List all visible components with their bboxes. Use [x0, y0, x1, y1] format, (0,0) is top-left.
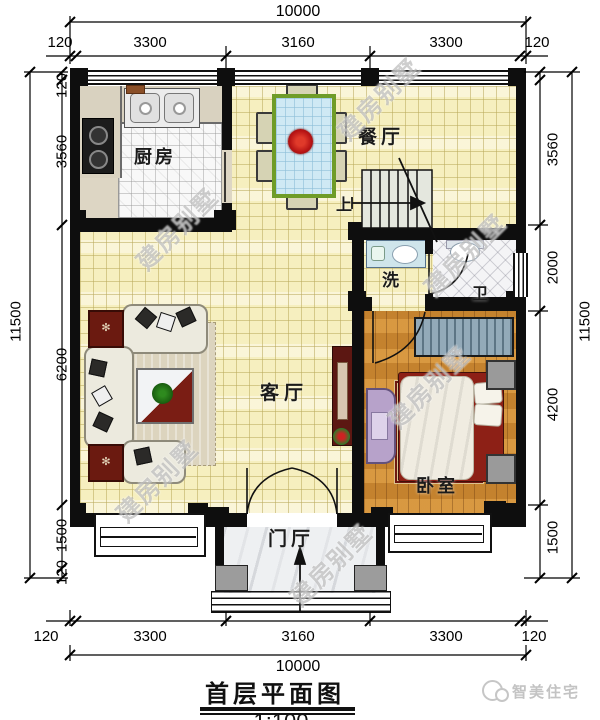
dim-top-seg-4: 120	[507, 34, 567, 51]
vanity-basin	[392, 245, 418, 264]
dim-top-overall: 10000	[248, 3, 348, 21]
dim-top-seg-0: 120	[30, 34, 90, 51]
soap-tray	[126, 85, 145, 94]
room-label-foyer: 门厅	[268, 524, 314, 551]
bay-window-bedroom-line	[394, 533, 482, 535]
room-label-living: 客厅	[260, 378, 308, 405]
pillow	[89, 359, 108, 378]
burner-top	[89, 126, 108, 145]
window-bath-right	[513, 253, 528, 297]
wall-living-bedroom-divider	[352, 240, 364, 513]
side-table-top: ✻	[88, 310, 124, 348]
porch-pier-left	[215, 565, 248, 591]
dim-top-seg-2: 3160	[268, 34, 328, 51]
sink-drain-right	[173, 102, 186, 115]
porch-pier-right	[354, 565, 387, 591]
dim-right-overall: 11500	[577, 287, 594, 357]
dim-left-seg-4: 120	[54, 538, 71, 608]
title-scale: 1:100	[253, 709, 308, 720]
dim-left-overall: 11500	[8, 287, 25, 357]
wall-right-lower	[516, 297, 526, 527]
dim-left-seg-0: 120	[54, 51, 71, 121]
room-label-bath: 卫	[472, 280, 488, 304]
dim-bottom-seg-1: 3300	[120, 628, 180, 645]
window-top-kitchen	[88, 70, 217, 85]
vanity-accessory	[371, 246, 385, 261]
column	[506, 503, 526, 527]
dim-bottom-seg-3: 3300	[416, 628, 476, 645]
window-top-dining	[235, 70, 361, 85]
brand-logo-icon-small	[495, 688, 509, 702]
wall-wash-bath-divider-top	[425, 240, 433, 254]
dim-top-seg-1: 3300	[120, 34, 180, 51]
dim-right-seg-3: 1500	[545, 503, 562, 573]
dim-bottom-seg-0: 120	[16, 628, 76, 645]
nightstand-bottom	[486, 454, 516, 484]
brand-logo-text: 智美住宅	[512, 681, 580, 702]
tv-cabinet-panel	[337, 362, 348, 420]
side-table-bottom: ✻	[88, 444, 124, 482]
page-title: 首层平面图	[205, 681, 345, 708]
bed-pillow-2	[473, 403, 502, 427]
dim-left-seg-1: 3560	[54, 117, 71, 187]
column	[70, 210, 86, 230]
sink-drain-left	[139, 102, 152, 115]
column	[508, 68, 526, 86]
wall-left-exterior	[70, 72, 80, 527]
column	[214, 210, 236, 230]
stairs-up-label: 上	[336, 191, 352, 215]
title-underline-thin	[200, 713, 355, 715]
wall-kitchen-right-upper	[222, 86, 232, 150]
dim-left-seg-2: 6200	[54, 330, 71, 400]
column	[207, 507, 229, 527]
column	[70, 503, 86, 527]
column	[348, 222, 366, 240]
room-label-wash: 洗	[382, 266, 399, 291]
flower-pot	[333, 428, 350, 445]
dim-right-seg-1: 2000	[545, 233, 562, 303]
column	[348, 291, 366, 311]
title-underline-thick	[200, 707, 355, 711]
column	[217, 68, 235, 86]
table-flower	[288, 129, 313, 154]
column	[70, 68, 88, 86]
room-label-bedroom: 卧室	[416, 472, 458, 498]
nightstand-top	[486, 360, 516, 390]
dim-right-seg-0: 3560	[545, 115, 562, 185]
dim-bottom-seg-4: 120	[504, 628, 564, 645]
burner-bottom	[89, 150, 108, 169]
dim-bottom-seg-2: 3160	[268, 628, 328, 645]
room-label-kitchen: 厨房	[134, 143, 176, 169]
dim-right-seg-2: 4200	[545, 370, 562, 440]
floor-plan-page: ✻ ✻	[0, 0, 600, 720]
